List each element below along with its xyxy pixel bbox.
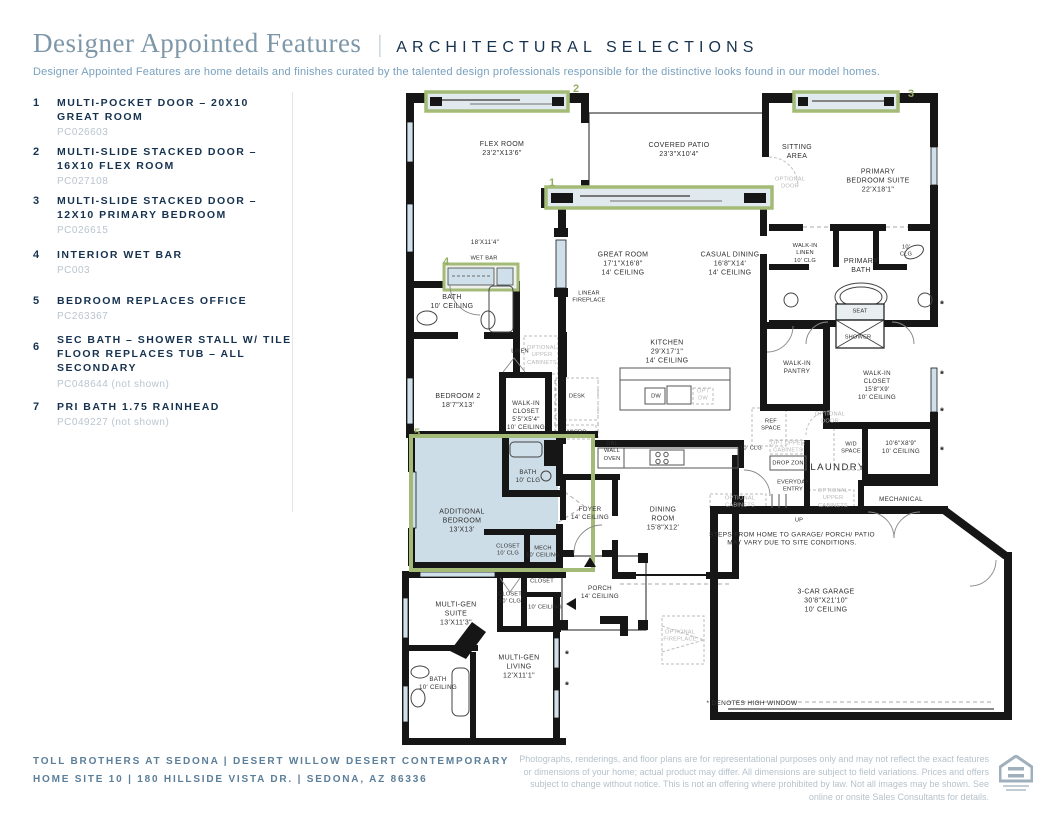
high-window-mark: * — [940, 407, 944, 418]
label-optional-cabinets: OPTIONAL CABINETS — [725, 496, 755, 511]
label-drop-zone: DROP ZONE — [772, 460, 807, 467]
label-shower: SHOWER — [845, 334, 872, 341]
room-label-foyer: FOYER 14' CEILING — [571, 506, 609, 522]
equal-housing-logo-icon — [999, 755, 1033, 798]
footer-disclaimer: Photographs, renderings, and floor plans… — [519, 753, 989, 803]
label-optional-door-2: OPTIONAL DOOR — [815, 412, 845, 427]
room-label-primary-bedroom: PRIMARY BEDROOM SUITE 22'X18'1" — [846, 167, 909, 194]
label-optional-door: OPTIONAL DOOR — [775, 177, 805, 192]
label-10-clg-hall: 10' CLG — [740, 445, 762, 452]
high-window-mark: * — [940, 446, 944, 457]
room-label-additional-bedroom: ADDITIONAL BEDROOM 13'X13' — [439, 507, 485, 534]
label-opt-dw: OPT DW — [697, 389, 709, 404]
label-optional-fireplace: OPTIONAL FIREPLACE — [663, 630, 696, 645]
high-window-mark: * — [565, 681, 569, 692]
room-label-multigen-living: MULTI-GEN LIVING 12'X11'1" — [498, 653, 539, 680]
label-closet-top: CLOSET — [530, 578, 554, 585]
label-linear-fireplace: LINEAR FIREPLACE — [572, 291, 605, 306]
plan-marker-3: 3 — [908, 88, 914, 100]
label-mech: MECH 10' CEILING — [526, 546, 560, 561]
label-everyday-entry: EVERYDAY ENTRY — [777, 480, 809, 495]
room-label-garage: 3-CAR GARAGE 30'8"X21'10" 10' CEILING — [797, 587, 854, 614]
high-window-mark: * — [565, 650, 569, 661]
label-desk: DESK — [569, 393, 585, 400]
note-steps: STEPS FROM HOME TO GARAGE/ PORCH/ PATIO … — [709, 532, 875, 549]
room-label-walkin-closet-primary: WALK-IN CLOSET 15'8"X9' 10' CEILING — [858, 370, 896, 402]
label-10-ceiling-hall: 10' CEILING — [528, 604, 562, 611]
plan-marker-2: 2 — [573, 83, 579, 95]
room-label-great-room: GREAT ROOM 17'1"X16'8" 14' CEILING — [598, 250, 649, 277]
plan-marker-1: 1 — [549, 177, 555, 189]
optional-boxes — [524, 336, 866, 664]
room-label-bath-1: BATH 10' CEILING — [431, 293, 474, 311]
room-label-multigen-bath: BATH 10' CEILING — [419, 676, 457, 692]
room-label-flex-room: FLEX ROOM 23'2"X13'6" — [480, 140, 524, 158]
label-closet-addbed: CLOSET 10' CLG — [496, 544, 520, 559]
high-window-mark: * — [940, 300, 944, 311]
label-optional-upper-cabinets-2: OPTIONAL UPPER CABINETS — [818, 488, 848, 510]
label-micro: MICRO — [567, 429, 587, 436]
room-label-bedroom-2: BEDROOM 2 18'7"X13' — [435, 392, 480, 410]
label-wet-bar: WET BAR — [470, 255, 497, 262]
room-label-casual-dining: CASUAL DINING 16'8"X14' 14' CEILING — [701, 250, 760, 277]
room-label-sitting-area: SITTING AREA — [782, 143, 812, 161]
label-flex-space-dimension: 10'6"X8'9" 10' CEILING — [882, 440, 920, 456]
footer-line-2: HOME SITE 10 | 180 HILLSIDE VISTA DR. | … — [33, 771, 509, 789]
label-ref-space: REF SPACE — [761, 419, 781, 434]
label-wd-space: W/D SPACE — [841, 442, 861, 457]
room-label-mechanical: MECHANICAL — [879, 496, 923, 504]
room-label-laundry: LAUNDRY — [810, 462, 865, 474]
plan-marker-5: 5 — [414, 427, 420, 439]
plan-marker-4: 4 — [443, 256, 449, 268]
room-label-dining: DINING ROOM 15'8"X12' — [647, 505, 679, 532]
room-label-kitchen: KITCHEN 29'X17'1" 14' CEILING — [646, 338, 689, 365]
room-label-walkin-pantry: WALK-IN PANTRY — [783, 360, 811, 376]
label-dw: DW — [651, 393, 661, 400]
room-label-walkin-closet-small: WALK-IN CLOSET 5'5"X5'4" 10' CEILING — [507, 400, 545, 432]
label-optional-upper-cabinets: OPTIONAL UPPER CABINETS — [527, 345, 557, 367]
room-label-multigen-suite: MULTI-GEN SUITE 13'X11'3" — [435, 600, 476, 627]
label-flex-dimension: 18'X11'4" — [471, 239, 499, 247]
label-seat: SEAT — [852, 308, 867, 315]
page: Designer Appointed Features|ARCHITECTURA… — [0, 0, 1055, 815]
footer-community: TOLL BROTHERS AT SEDONA | DESERT WILLOW … — [33, 753, 509, 788]
label-opt-upper-cabinets: OPT UPPER CABINETS — [771, 441, 805, 456]
room-label-primary-bath: PRIMARY BATH — [844, 257, 878, 275]
room-label-covered-patio: COVERED PATIO 23'3"X10'4" — [648, 141, 709, 159]
label-up: UP — [795, 517, 803, 524]
high-window-mark: * — [940, 370, 944, 381]
footer-line-1: TOLL BROTHERS AT SEDONA | DESERT WILLOW … — [33, 753, 509, 771]
room-label-porch: PORCH 14' CEILING — [581, 585, 619, 601]
door-triangle-icon — [566, 557, 596, 610]
note-high-window: * DENOTES HIGH WINDOW — [707, 700, 798, 708]
room-label-bath-5: BATH 10' CLG — [516, 469, 541, 485]
room-label-walkin-linen: WALK-IN LINEN 10' CLG — [793, 243, 818, 265]
label-closet-multigen: CLOSET 10' CLG — [498, 592, 522, 607]
label-dbl-wall-oven: DBL WALL OVEN — [604, 441, 621, 463]
label-10-clg: 10' CLG — [900, 245, 912, 260]
